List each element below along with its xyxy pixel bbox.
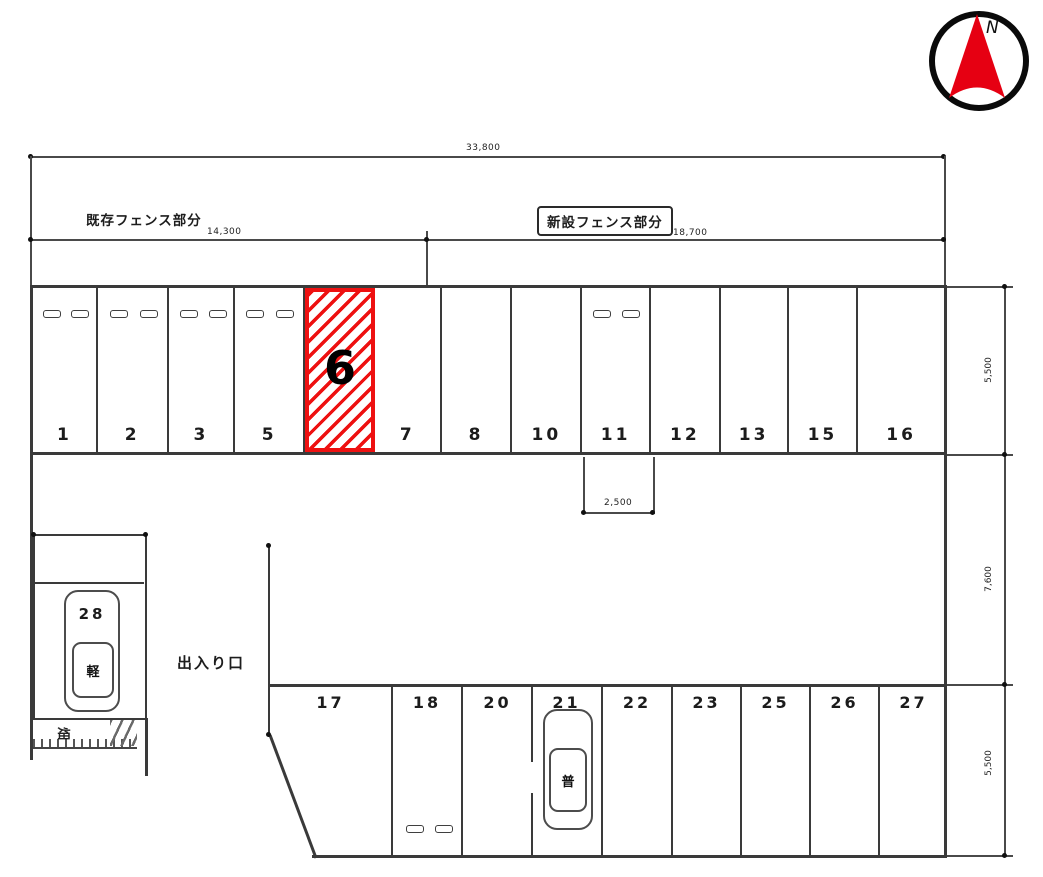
kei-area-divider <box>35 582 144 584</box>
kei-area-right-extension <box>145 718 148 776</box>
stall-11[interactable]: 11 <box>582 288 651 452</box>
wheel-stop <box>246 310 264 318</box>
wheel-stop <box>435 825 453 833</box>
futsu-type-badge: 普 <box>549 748 587 812</box>
wheel-stop <box>209 310 227 318</box>
new-fence-length: 18,700 <box>673 228 708 238</box>
right-dimension-line <box>1004 286 1006 856</box>
entrance-label: 出入り口 <box>177 652 245 673</box>
middle-depth-value: 7,600 <box>984 556 994 602</box>
stall-26[interactable]: 26 <box>811 685 880 855</box>
wheel-stop <box>276 310 294 318</box>
stall-25[interactable]: 25 <box>742 685 811 855</box>
stall-13[interactable]: 13 <box>721 288 789 452</box>
stall-28-number: 28 <box>66 605 118 623</box>
wheel-stop <box>140 310 158 318</box>
total-dimension-value: 33,800 <box>466 143 501 153</box>
kei-type-badge: 軽 <box>72 642 114 698</box>
stall-8[interactable]: 8 <box>442 288 513 452</box>
stall-18[interactable]: 18 <box>393 685 463 855</box>
wheel-stop <box>622 310 640 318</box>
field-label: 畑 <box>55 727 74 740</box>
bottom-row-bottom-edge <box>312 855 947 858</box>
new-fence-label-box: 新設フェンス部分 <box>537 206 673 236</box>
compass-n-label: N <box>986 18 999 38</box>
north-compass: N <box>926 4 1032 118</box>
wheel-stop <box>43 310 61 318</box>
total-dimension-line <box>30 156 945 158</box>
top-parking-row: 1 2 3 5 6 7 8 10 <box>30 285 947 455</box>
stall-width-extension-left <box>583 457 585 513</box>
kei-car-outline: 28 軽 <box>64 590 120 712</box>
bottom-parking-row: 17 18 20 21 普 22 23 25 <box>270 685 947 855</box>
stall-15[interactable]: 15 <box>789 288 859 452</box>
wheel-stop <box>593 310 611 318</box>
fence-dimension-line <box>30 239 945 241</box>
stall-6-number: 6 <box>309 341 371 395</box>
stall-27[interactable]: 27 <box>880 685 947 855</box>
stall-21[interactable]: 21 普 <box>532 685 603 855</box>
existing-fence-label: 既存フェンス部分 <box>86 209 202 229</box>
stall-2[interactable]: 2 <box>98 288 169 452</box>
stall-6-highlighted[interactable]: 6 <box>305 288 375 452</box>
stall-1[interactable]: 1 <box>33 288 98 452</box>
stall-5[interactable]: 5 <box>235 288 305 452</box>
dimension-extension-left <box>30 156 32 287</box>
stall-width-extension-right <box>653 457 655 513</box>
parking-layout-drawing: N 33,800 既存フェンス部分 14,300 新設フェンス部分 18,700… <box>0 0 1043 877</box>
futsu-car-outline: 普 <box>543 709 593 830</box>
wheel-stop <box>406 825 424 833</box>
stall-3[interactable]: 3 <box>169 288 236 452</box>
existing-fence-length: 14,300 <box>207 227 242 237</box>
wheel-stop <box>180 310 198 318</box>
slope-hatch <box>110 720 137 746</box>
stall-17[interactable]: 17 <box>270 685 393 855</box>
stall-10[interactable]: 10 <box>512 288 582 452</box>
new-fence-label: 新設フェンス部分 <box>547 215 663 231</box>
wheel-stop <box>71 310 89 318</box>
wheel-stop <box>110 310 128 318</box>
stall-23[interactable]: 23 <box>673 685 742 855</box>
stall-22[interactable]: 22 <box>603 685 673 855</box>
stall-width-dimension-line <box>583 512 655 514</box>
dimension-extension-right <box>944 156 946 287</box>
stall-width-value: 2,500 <box>604 498 632 508</box>
stall-16[interactable]: 16 <box>858 288 944 452</box>
lower-row-depth-value: 5,500 <box>984 740 994 786</box>
stall-7[interactable]: 7 <box>375 288 442 452</box>
kei-stall-28-area[interactable]: 28 軽 <box>33 534 147 720</box>
stall-12[interactable]: 12 <box>651 288 721 452</box>
upper-row-depth-value: 5,500 <box>984 347 994 393</box>
stall-20[interactable]: 20 <box>463 685 532 855</box>
